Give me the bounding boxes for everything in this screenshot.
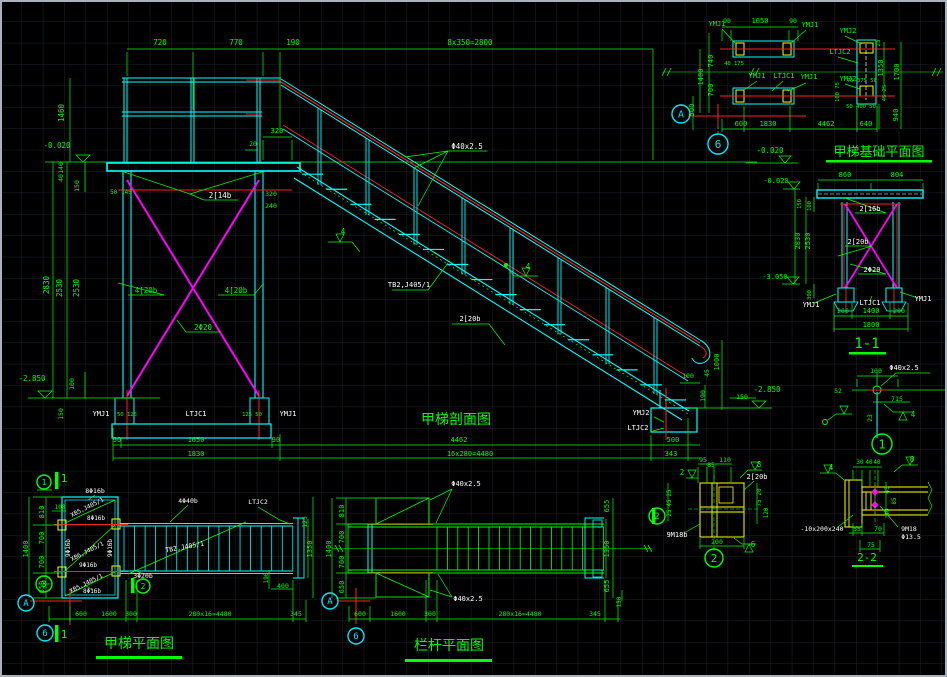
cad-text: 40	[884, 508, 891, 516]
cad-text: 2[20b	[459, 315, 480, 323]
cad-text: 640	[860, 120, 873, 128]
cad-text: 2Φ20	[194, 323, 213, 332]
bubble-label: 1	[878, 437, 885, 451]
cad-text: 700	[38, 532, 46, 545]
cad-text: 150	[736, 393, 748, 401]
cad-text: 1350	[603, 541, 611, 558]
cad-text: 1700	[893, 64, 901, 81]
cad-text: 200	[711, 538, 723, 546]
cad-text: YMJ1	[801, 73, 818, 81]
cad-text: 1600	[390, 610, 406, 618]
cad-text: YMJ2	[840, 27, 857, 35]
bubble-label: 6	[715, 138, 722, 151]
cad-text: 715	[891, 395, 903, 403]
cad-text: 804	[891, 171, 904, 179]
cad-text: 770	[229, 38, 243, 47]
cad-text: 1800	[863, 321, 880, 329]
cad-text: 500	[667, 436, 680, 444]
cad-text: 90	[789, 17, 797, 25]
cad-text: 23	[866, 414, 874, 422]
cad-text: 4	[829, 463, 834, 472]
cad-text: 1400	[325, 541, 333, 558]
cad-text: 100	[870, 367, 882, 375]
cad-text: 2Φ20	[864, 266, 881, 274]
cad-text: YMJ1	[280, 410, 297, 418]
foundation-plan-title: 甲梯基础平面图	[833, 145, 924, 160]
cad-text: 8Φ16b	[83, 588, 101, 595]
cad-text: 345	[589, 610, 601, 618]
bubble-label: 2	[141, 582, 146, 591]
cad-text: 25	[875, 39, 882, 47]
cad-text: -2.850	[18, 374, 46, 383]
cad-text: 55	[853, 525, 861, 533]
cad-text: 2530	[55, 278, 64, 297]
cad-text: TB2,J405/1	[388, 281, 430, 289]
cad-text: LTJC1	[185, 410, 206, 418]
cad-text: YMJ1	[915, 295, 932, 303]
cad-text: 100	[68, 378, 76, 390]
cad-text: 1350	[306, 541, 314, 558]
cad-text: -0.020	[756, 146, 784, 155]
cad-text: 343	[665, 450, 678, 458]
cad-text: 1830	[188, 450, 205, 458]
cad-text: 2830	[42, 275, 51, 294]
railing-plan-title: 栏杆平面图	[414, 638, 484, 654]
cad-text: 9M18b	[666, 531, 687, 539]
cad-text: 25	[666, 509, 673, 517]
cad-text: 345	[290, 610, 302, 618]
cad-text: 2[14b	[209, 191, 232, 200]
cad-text: YMJ1	[803, 301, 820, 309]
cad-text: 650	[38, 581, 46, 594]
cad-text: 200	[893, 307, 905, 315]
cad-text: 4	[911, 410, 916, 419]
cad-text: YMJ1	[802, 21, 819, 29]
cad-text: LTJC2	[248, 498, 268, 506]
cad-text: 9Φ16b	[65, 539, 72, 557]
cad-text: 1400	[697, 69, 705, 86]
cad-text: 655	[603, 580, 611, 593]
cad-text: 700	[338, 556, 346, 569]
cad-text: YMJ1	[749, 72, 766, 80]
cad-text: 110	[719, 456, 731, 464]
bubble-label: 2	[711, 552, 718, 565]
cad-text: 3Φ20b	[133, 572, 153, 580]
cad-text: 100	[807, 201, 813, 211]
cad-text: -10x200x240	[800, 525, 843, 533]
cad-text: 1830	[760, 120, 777, 128]
cad-text: 320	[271, 127, 284, 135]
cad-text: 1350	[877, 60, 885, 77]
cad-text: YMJ2	[633, 409, 650, 417]
cad-text: 9M18	[901, 525, 917, 533]
bubble-label: 6	[353, 632, 358, 642]
cad-text: 2[16b	[859, 205, 880, 213]
bubble-label: 2	[654, 512, 659, 522]
detail-2-2-title-underline	[852, 565, 883, 567]
cad-text: 2[20b	[746, 473, 767, 481]
cad-text: 1000	[713, 354, 721, 371]
cad-text: Φ40x2.5	[451, 480, 481, 488]
cad-text: 190	[699, 390, 707, 402]
cad-text: 40	[873, 459, 881, 466]
cad-text: 1050	[752, 17, 769, 25]
cad-text: 600	[75, 610, 87, 618]
elevation-title: 甲梯剖面图	[421, 412, 491, 428]
cad-text: 400	[277, 582, 289, 590]
cad-text: 140	[57, 162, 65, 174]
cad-text: 30	[856, 459, 864, 466]
section-1-1-title-underline	[849, 352, 886, 355]
cad-text: 85	[707, 461, 715, 469]
cad-text: 100	[682, 372, 694, 380]
cad-text: 52	[834, 387, 842, 395]
cad-text: 2830	[794, 233, 802, 250]
cad-text: 600	[735, 120, 748, 128]
cad-text: 1460	[57, 103, 66, 122]
cad-text: 2[20b	[847, 238, 868, 246]
cad-text: 4[20b	[225, 286, 248, 295]
cad-text: 4[20b	[135, 286, 158, 295]
cad-text: 1650	[188, 436, 205, 444]
cad-text: Φ40x2.5	[889, 364, 919, 372]
cad-text: 4	[341, 227, 346, 236]
cad-text: 190	[286, 38, 300, 47]
cad-text: 700	[338, 531, 346, 544]
cad-drawing: 甲梯基础平面图 1-1 甲梯剖面图 甲梯平面图 栏杆平面图 2-2 A6A6A6…	[0, 0, 947, 677]
cad-text: 8Φ16b	[87, 515, 105, 522]
cad-text: 8x350=2800	[447, 38, 493, 47]
cad-text: 650	[338, 581, 346, 594]
cad-text: 90	[113, 436, 121, 444]
cad-text: 600	[354, 610, 366, 618]
cad-text: 90	[723, 17, 731, 25]
cad-text: Φ40x2.5	[451, 142, 483, 151]
cad-text: 125	[301, 516, 309, 528]
cad-text: 70	[874, 525, 882, 533]
cad-text: 280x16=4480	[498, 610, 541, 618]
cad-text: 125 50	[242, 412, 262, 418]
stair-plan-title: 甲梯平面图	[104, 636, 174, 652]
bubble-label: A	[23, 599, 29, 609]
cad-text: 40	[865, 459, 873, 466]
cad-text: 740	[707, 55, 715, 68]
cad-text: 6	[751, 540, 756, 549]
cad-text: 200	[837, 307, 849, 315]
cad-text: 120	[763, 507, 770, 518]
cad-text: 20	[249, 140, 257, 148]
cad-text: LTJC2	[627, 424, 648, 432]
stair-plan-title-underline	[96, 656, 182, 659]
foundation-plan-title-underline	[826, 160, 932, 163]
cad-text: 50 125	[117, 412, 137, 418]
cad-text: 75	[867, 541, 875, 549]
railing-plan-title-underline	[405, 659, 492, 662]
cad-text: 4462	[818, 120, 835, 128]
cad-text: LTJC1	[773, 72, 794, 80]
cad-text: 240	[265, 202, 277, 210]
cad-text: 860	[839, 171, 852, 179]
cad-text: 1400	[863, 307, 880, 315]
cad-text: 1	[61, 472, 68, 485]
cad-text: 1600	[101, 610, 117, 618]
cad-text: 50 400 50	[846, 104, 876, 110]
cad-text: LTJC2	[829, 48, 850, 56]
cad-text: -0.020	[43, 141, 71, 150]
cad-text: 16x280=4480	[447, 450, 493, 458]
cad-text: 4Φ40b	[178, 497, 198, 505]
cad-text: 20	[756, 488, 763, 496]
section-1-1-title: 1-1	[854, 336, 879, 352]
cad-text: 100	[55, 504, 66, 511]
cad-text: 300	[125, 610, 137, 618]
bubble-label: 1	[42, 478, 47, 487]
cad-text: 150	[616, 596, 623, 607]
cad-text: 45	[884, 486, 891, 494]
cad-text: 700	[707, 84, 715, 97]
bubble-label: 6	[42, 629, 47, 639]
cad-text: 95	[699, 456, 707, 464]
cad-text: 300	[424, 610, 436, 618]
cad-text: 4462	[451, 436, 468, 444]
cad-text: 75	[756, 499, 763, 507]
cad-text: 6	[910, 455, 915, 464]
cad-text: 2	[680, 468, 685, 477]
cad-text: -2.850	[753, 385, 781, 394]
cad-text: Φ13.5	[901, 533, 921, 541]
detail-2-2-title: 2-2	[857, 551, 877, 564]
cad-text: 190	[263, 572, 270, 583]
cad-text: 45	[703, 369, 711, 377]
cad-text: -0.020	[763, 177, 788, 185]
cad-text: 1	[61, 628, 68, 641]
cad-text: 2530	[804, 233, 812, 250]
cad-text: -3.050	[762, 273, 787, 281]
bubble-label: A	[327, 597, 333, 607]
cad-text: 8Φ16b	[85, 487, 105, 495]
cad-text: 810	[38, 506, 46, 519]
cad-text: Φ40x2.5	[453, 595, 483, 603]
cad-text: 50 145	[110, 189, 132, 196]
cad-text: 75 375 50	[847, 78, 877, 84]
cad-text: 655	[603, 500, 611, 513]
cad-text: LTJC1	[859, 299, 880, 307]
cad-text: 810	[338, 505, 346, 518]
cad-text: 85	[891, 497, 898, 505]
cad-text: 940	[892, 109, 900, 122]
cad-text: 150	[797, 199, 803, 209]
bubble-label: A	[678, 110, 684, 121]
cad-text: 150	[57, 408, 65, 420]
cad-text: 100 75	[835, 82, 841, 102]
cad-text: 280x16=4480	[188, 610, 231, 618]
cad-text: 300	[807, 290, 813, 300]
cad-text: 150	[73, 180, 81, 192]
cad-text: 40 175	[724, 61, 744, 67]
cad-text: 320	[265, 190, 277, 198]
cad-text: 25	[666, 489, 673, 497]
cad-canvas: 甲梯基础平面图 1-1 甲梯剖面图 甲梯平面图 栏杆平面图 2-2 A6A6A6…	[0, 0, 947, 677]
cad-text: 2530	[72, 278, 81, 297]
cad-text: 700	[38, 556, 46, 569]
cad-text: 90	[272, 436, 280, 444]
cad-text: 1400	[22, 541, 30, 558]
cad-text: 8	[757, 460, 762, 469]
cad-text: YMJ1	[93, 410, 110, 418]
cad-text: 40	[57, 174, 65, 182]
cad-text: 45 25	[882, 85, 888, 102]
cad-text: 720	[153, 38, 167, 47]
cad-text: 45	[666, 499, 673, 507]
cad-text: 9Φ16b	[79, 562, 97, 569]
cad-text: 500	[688, 104, 696, 117]
cad-text: 9Φ16b	[107, 539, 114, 557]
cad-text: 4	[526, 262, 531, 271]
